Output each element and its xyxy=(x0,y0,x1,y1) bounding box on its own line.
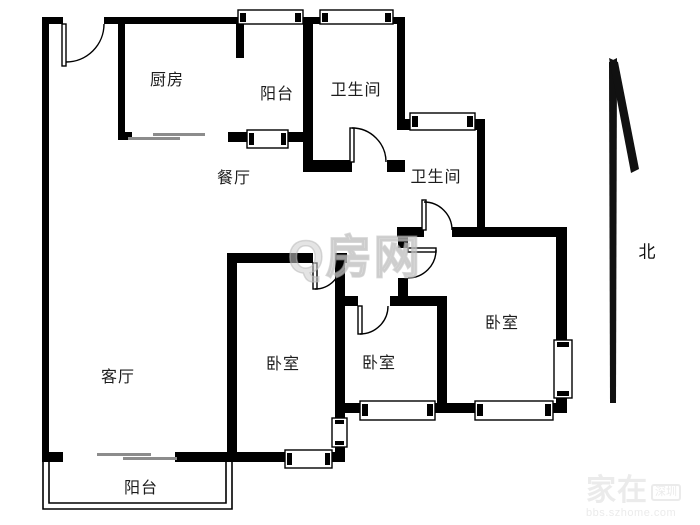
room-label-bathroom-inner: 卫生间 xyxy=(410,163,461,187)
wall-segment xyxy=(437,296,447,413)
door xyxy=(358,306,388,334)
door-arc xyxy=(360,306,388,334)
door xyxy=(350,128,386,162)
window xyxy=(360,401,435,420)
sliding-door-panel xyxy=(123,457,177,460)
north-arrow xyxy=(609,58,639,403)
north-arrow-shaft xyxy=(609,58,617,403)
wall-segment xyxy=(42,17,49,462)
watermark-site: bbs.szhome.com xyxy=(586,508,696,519)
window xyxy=(320,10,393,24)
north-label: 北 xyxy=(639,238,656,263)
room-label-kitchen: 厨房 xyxy=(150,66,184,90)
wall-segment xyxy=(118,24,125,134)
room-label-balcony-bottom: 阳台 xyxy=(124,474,158,498)
window xyxy=(285,450,332,468)
wall-segment xyxy=(397,17,405,130)
room-label-balcony-top: 阳台 xyxy=(260,80,294,104)
window xyxy=(475,401,553,420)
wall-segment xyxy=(303,160,352,172)
room-label-bedroom-middle: 卧室 xyxy=(362,349,396,373)
room-label-bedroom-left: 卧室 xyxy=(266,350,300,374)
watermark-center: Q房网 xyxy=(288,234,428,280)
wall-segment xyxy=(477,119,485,237)
wall-segment xyxy=(236,24,244,58)
room-label-bathroom-top: 卫生间 xyxy=(330,76,381,100)
room-label-bedroom-right: 卧室 xyxy=(485,309,519,333)
sliding-door-panel xyxy=(153,133,205,136)
door-arc xyxy=(352,128,386,162)
window xyxy=(410,113,475,130)
wall-segment xyxy=(227,253,237,462)
wall-segment xyxy=(387,160,405,172)
sliding-door-panel xyxy=(128,137,180,140)
watermark-badge: 深圳 xyxy=(651,484,681,501)
window xyxy=(332,418,347,447)
window xyxy=(554,340,572,398)
watermark-brand: 家在 xyxy=(586,476,648,506)
wall-segment xyxy=(303,24,313,170)
sliding-doors xyxy=(97,133,205,460)
wall-segment xyxy=(452,227,567,237)
window xyxy=(247,130,288,148)
sliding-door-panel xyxy=(97,453,151,456)
watermark-corner: 家在 深圳 bbs.szhome.com xyxy=(586,476,696,519)
door-arc xyxy=(66,24,104,62)
wall-segment xyxy=(42,452,63,462)
door-arc xyxy=(424,202,452,230)
room-label-dining: 餐厅 xyxy=(217,164,251,188)
door xyxy=(422,200,452,230)
window xyxy=(238,10,303,24)
entry-door xyxy=(62,24,104,66)
room-label-living: 客厅 xyxy=(101,363,135,387)
floor-plan: 厨房 阳台 卫生间 餐厅 卫生间 客厅 卧室 卧室 卧室 阳台 北 Q房网 家在… xyxy=(0,0,700,525)
